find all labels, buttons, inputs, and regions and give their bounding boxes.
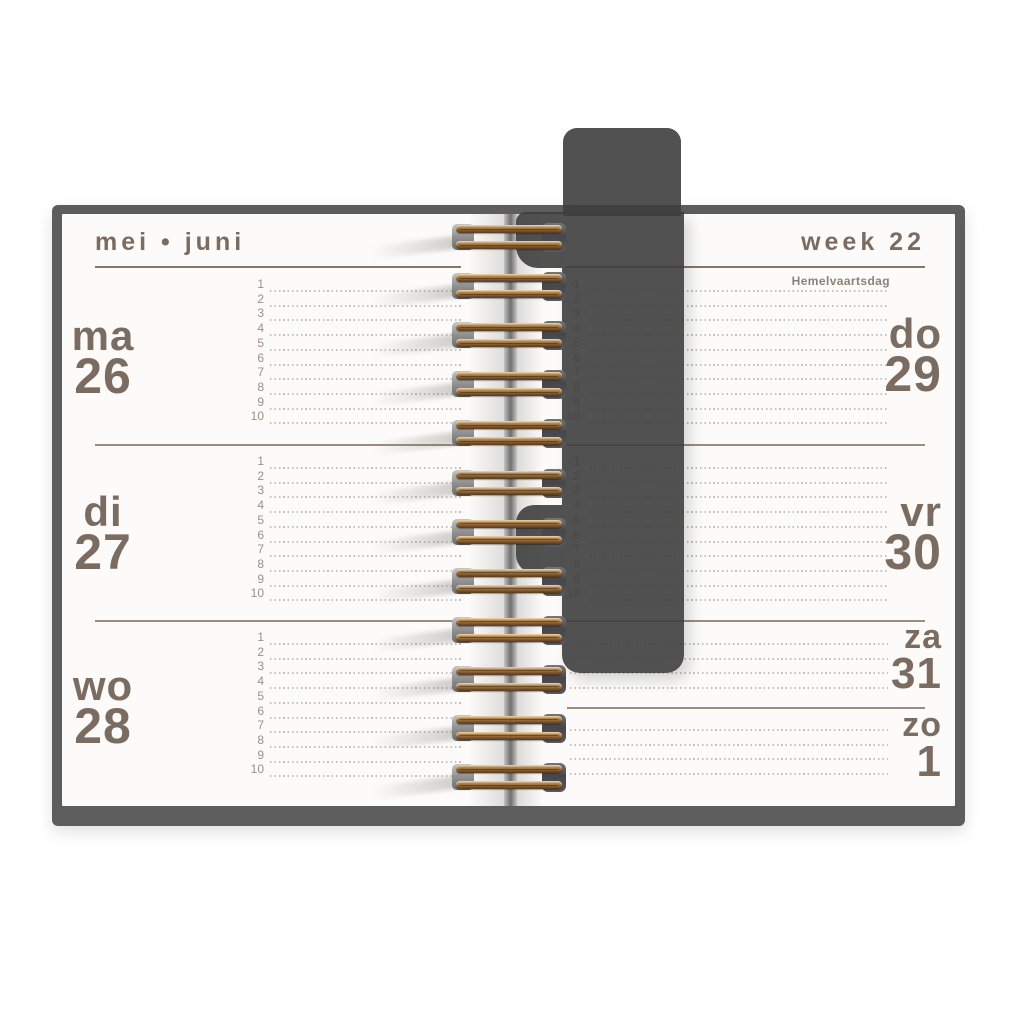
ruled-line — [270, 305, 461, 307]
ruled-line — [270, 599, 461, 601]
line-number: 4 — [236, 322, 264, 335]
day-date: 26 — [70, 353, 136, 400]
wire-seam — [460, 278, 558, 279]
line-number: 9 — [236, 396, 264, 409]
day-date: 27 — [70, 529, 136, 576]
binding-wire — [456, 421, 562, 429]
ruled-line — [270, 526, 461, 528]
binding-wire — [456, 437, 562, 445]
day-abbr: zo — [876, 710, 942, 741]
wire-seam — [460, 294, 558, 295]
binding-wire — [456, 274, 562, 282]
line-number: 1 — [236, 278, 264, 291]
line-number: 3 — [236, 660, 264, 673]
line-number: 10 — [236, 410, 264, 423]
line-number: 4 — [236, 499, 264, 512]
product-photo-stage: mei • juni week 22 Hemelvaartsdag 123456… — [0, 0, 1024, 1024]
binding-wire — [456, 536, 562, 544]
ruled-line — [270, 422, 461, 424]
wire-seam — [460, 670, 558, 671]
line-number: 6 — [236, 529, 264, 542]
line-number: 8 — [236, 558, 264, 571]
ruled-line — [270, 746, 461, 748]
wire-seam — [460, 621, 558, 622]
left-header-rule — [95, 266, 461, 268]
binding-wire — [456, 290, 562, 298]
ruled-line — [270, 702, 461, 704]
wire-seam — [460, 686, 558, 687]
bookmark-body — [562, 212, 684, 673]
wire-seam — [460, 392, 558, 393]
binding-wire — [456, 520, 562, 528]
line-number: 3 — [236, 484, 264, 497]
binding-wire — [456, 667, 562, 675]
wire-seam — [460, 245, 558, 246]
right-section-divider — [567, 707, 925, 709]
month-header: mei • juni — [95, 228, 245, 257]
ruled-line — [270, 761, 461, 763]
ruled-line — [270, 717, 461, 719]
line-number: 10 — [236, 763, 264, 776]
wire-seam — [460, 637, 558, 638]
line-number: 7 — [236, 366, 264, 379]
ruled-line — [270, 511, 461, 513]
line-number: 6 — [236, 352, 264, 365]
wire-seam — [460, 343, 558, 344]
ruled-line — [270, 378, 461, 380]
wire-seam — [460, 474, 558, 475]
day-abbr: za — [876, 622, 942, 653]
wire-seam — [460, 441, 558, 442]
wire-seam — [460, 490, 558, 491]
ruled-line — [570, 744, 888, 746]
day-label: do29 — [876, 316, 942, 398]
wire-seam — [460, 785, 558, 786]
day-date: 28 — [70, 703, 136, 750]
ruled-line — [270, 775, 461, 777]
line-number: 9 — [236, 573, 264, 586]
ruled-line — [270, 364, 461, 366]
binding-wire — [456, 471, 562, 479]
day-label: wo28 — [70, 668, 136, 750]
day-label: za31 — [876, 622, 942, 694]
day-label: vr30 — [876, 494, 942, 576]
line-number: 2 — [236, 646, 264, 659]
line-number: 9 — [236, 749, 264, 762]
line-number: 5 — [236, 690, 264, 703]
binding-wire — [456, 634, 562, 642]
left-section-divider — [95, 620, 461, 622]
ruled-line — [570, 773, 888, 775]
wire-seam — [460, 572, 558, 573]
line-number: 8 — [236, 734, 264, 747]
day-date: 29 — [876, 351, 942, 398]
binding-wire — [456, 487, 562, 495]
line-number: 3 — [236, 307, 264, 320]
binding-wire — [456, 585, 562, 593]
binding-wire — [456, 618, 562, 626]
line-number: 7 — [236, 719, 264, 732]
wire-seam — [460, 376, 558, 377]
binding-wire — [456, 388, 562, 396]
line-number: 4 — [236, 675, 264, 688]
wire-seam — [460, 719, 558, 720]
ruled-line — [270, 570, 461, 572]
wire-seam — [460, 425, 558, 426]
line-number: 7 — [236, 543, 264, 556]
binding-wire — [456, 683, 562, 691]
wire-seam — [460, 523, 558, 524]
day-label: ma26 — [70, 318, 136, 400]
line-number: 6 — [236, 705, 264, 718]
ruled-line — [270, 408, 461, 410]
binding-wire — [456, 225, 562, 233]
day-date: 1 — [876, 741, 942, 783]
day-date: 31 — [876, 653, 942, 695]
line-number: 8 — [236, 381, 264, 394]
line-number: 2 — [236, 293, 264, 306]
line-number: 1 — [236, 455, 264, 468]
line-number: 1 — [236, 631, 264, 644]
binding-wire — [456, 569, 562, 577]
day-date: 30 — [876, 529, 942, 576]
binding-wire — [456, 781, 562, 789]
wire-seam — [460, 539, 558, 540]
binding-wire — [456, 765, 562, 773]
holiday-label: Hemelvaartsdag — [690, 274, 890, 288]
wire-seam — [460, 229, 558, 230]
ruled-line — [270, 319, 461, 321]
ruled-line — [270, 658, 461, 660]
day-label: zo1 — [876, 710, 942, 782]
wire-seam — [460, 769, 558, 770]
day-label: di27 — [70, 494, 136, 576]
binding-wire — [456, 323, 562, 331]
line-number: 10 — [236, 587, 264, 600]
ruled-line — [570, 758, 888, 760]
binding-wire — [456, 241, 562, 249]
binding-wire — [456, 339, 562, 347]
ruled-line — [270, 555, 461, 557]
binding-wire — [456, 716, 562, 724]
ruled-line — [270, 467, 461, 469]
week-header: week 22 — [700, 228, 925, 257]
wire-seam — [460, 588, 558, 589]
line-number: 5 — [236, 514, 264, 527]
ruled-line — [270, 482, 461, 484]
wire-seam — [460, 735, 558, 736]
bookmark-tab — [563, 128, 681, 216]
ruled-line — [570, 729, 888, 731]
line-number: 2 — [236, 470, 264, 483]
ruled-line — [570, 687, 888, 689]
line-number: 5 — [236, 337, 264, 350]
binding-wire — [456, 372, 562, 380]
wire-seam — [460, 327, 558, 328]
binding-wire — [456, 732, 562, 740]
ruled-line — [270, 672, 461, 674]
